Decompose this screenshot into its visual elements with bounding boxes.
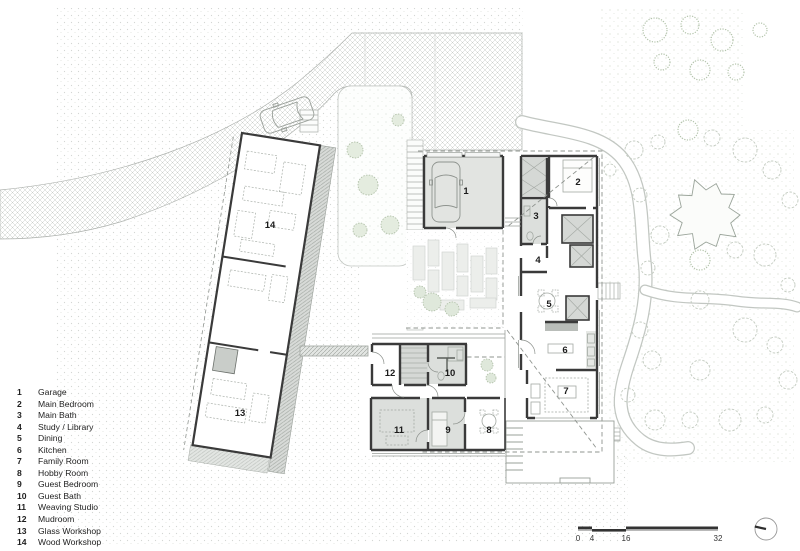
legend-item: 2Main Bedroom — [17, 399, 101, 411]
legend-item-number: 12 — [17, 514, 38, 526]
legend-item-label: Wood Workshop — [38, 537, 101, 549]
legend-item-number: 13 — [17, 526, 38, 538]
floor-plan-page: 14 13 — [0, 0, 800, 551]
scale-label-4: 4 — [590, 534, 595, 543]
legend-item-label: Hobby Room — [38, 468, 88, 480]
site-plan-drawing: 14 13 — [0, 0, 800, 551]
legend-item: 5Dining — [17, 433, 101, 445]
legend-item: 4Study / Library — [17, 422, 101, 434]
legend-item-label: Garage — [38, 387, 67, 399]
legend-item-label: Weaving Studio — [38, 502, 98, 514]
legend-item-label: Main Bedroom — [38, 399, 94, 411]
legend-item-number: 4 — [17, 422, 38, 434]
room-number-1: 1 — [463, 186, 469, 197]
scale-label-32: 32 — [714, 534, 723, 543]
legend: 1Garage 2Main Bedroom 3Main Bath 4Study … — [17, 387, 101, 549]
legend-item: 10Guest Bath — [17, 491, 101, 503]
legend-item-label: Main Bath — [38, 410, 77, 422]
legend-item-number: 11 — [17, 502, 38, 514]
room-number-13: 13 — [235, 408, 246, 419]
legend-item: 13Glass Workshop — [17, 526, 101, 538]
legend-item: 12Mudroom — [17, 514, 101, 526]
legend-item: 1Garage — [17, 387, 101, 399]
entry-garden-strip — [338, 86, 412, 266]
legend-item: 3Main Bath — [17, 410, 101, 422]
legend-item: 14Wood Workshop — [17, 537, 101, 549]
room-number-8: 8 — [486, 425, 491, 436]
room-number-2: 2 — [575, 177, 580, 188]
legend-item-label: Mudroom — [38, 514, 74, 526]
legend-item-label: Dining — [38, 433, 62, 445]
scale-label-16: 16 — [622, 534, 631, 543]
legend-item-number: 8 — [17, 468, 38, 480]
room-number-7: 7 — [563, 386, 568, 397]
legend-item: 8Hobby Room — [17, 468, 101, 480]
scale-label-0: 0 — [576, 534, 581, 543]
room-number-10: 10 — [445, 368, 456, 379]
legend-item-number: 6 — [17, 445, 38, 457]
room-weaving-studio — [371, 398, 428, 450]
room-number-5: 5 — [546, 299, 552, 310]
legend-item-number: 9 — [17, 479, 38, 491]
room-number-6: 6 — [562, 345, 567, 356]
legend-item-number: 5 — [17, 433, 38, 445]
room-number-11: 11 — [394, 425, 405, 436]
room-number-9: 9 — [445, 425, 450, 436]
room-number-3: 3 — [533, 211, 538, 222]
legend-item-number: 3 — [17, 410, 38, 422]
legend-item-number: 14 — [17, 537, 38, 549]
room-number-12: 12 — [385, 368, 396, 379]
legend-item-label: Kitchen — [38, 445, 67, 457]
legend-item-label: Study / Library — [38, 422, 93, 434]
legend-item-label: Guest Bedroom — [38, 479, 98, 491]
legend-item-number: 2 — [17, 399, 38, 411]
north-arrow-icon — [755, 518, 777, 540]
legend-item-label: Guest Bath — [38, 491, 81, 503]
room-number-4: 4 — [535, 255, 541, 266]
legend-item: 11Weaving Studio — [17, 502, 101, 514]
legend-item-number: 7 — [17, 456, 38, 468]
legend-item-number: 10 — [17, 491, 38, 503]
legend-item-number: 1 — [17, 387, 38, 399]
legend-item-label: Family Room — [38, 456, 89, 468]
legend-item-label: Glass Workshop — [38, 526, 101, 538]
room-number-14: 14 — [265, 220, 276, 231]
legend-item: 7Family Room — [17, 456, 101, 468]
legend-item: 9Guest Bedroom — [17, 479, 101, 491]
legend-item: 6Kitchen — [17, 445, 101, 457]
